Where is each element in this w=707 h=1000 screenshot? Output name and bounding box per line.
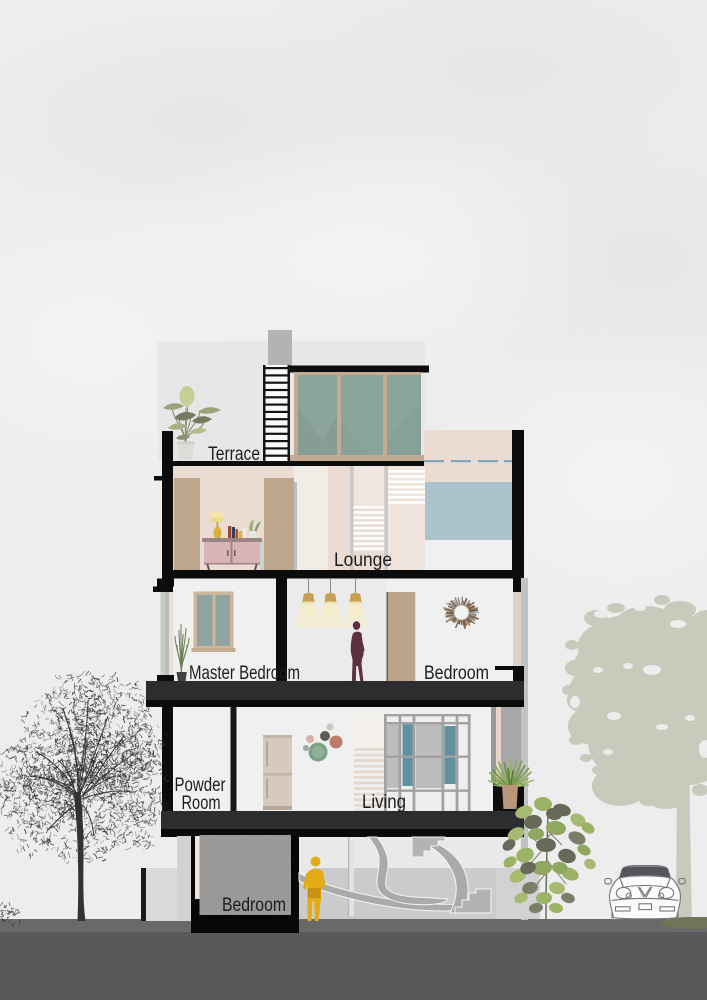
svg-text:Master Bedroom: Master Bedroom (189, 662, 300, 684)
svg-text:Room: Room (182, 793, 221, 814)
svg-text:Living: Living (362, 792, 406, 813)
svg-text:Bedroom: Bedroom (222, 895, 286, 916)
svg-text:Lounge: Lounge (334, 550, 392, 571)
svg-text:Terrace: Terrace (208, 444, 260, 465)
svg-text:Bedroom: Bedroom (424, 662, 489, 684)
